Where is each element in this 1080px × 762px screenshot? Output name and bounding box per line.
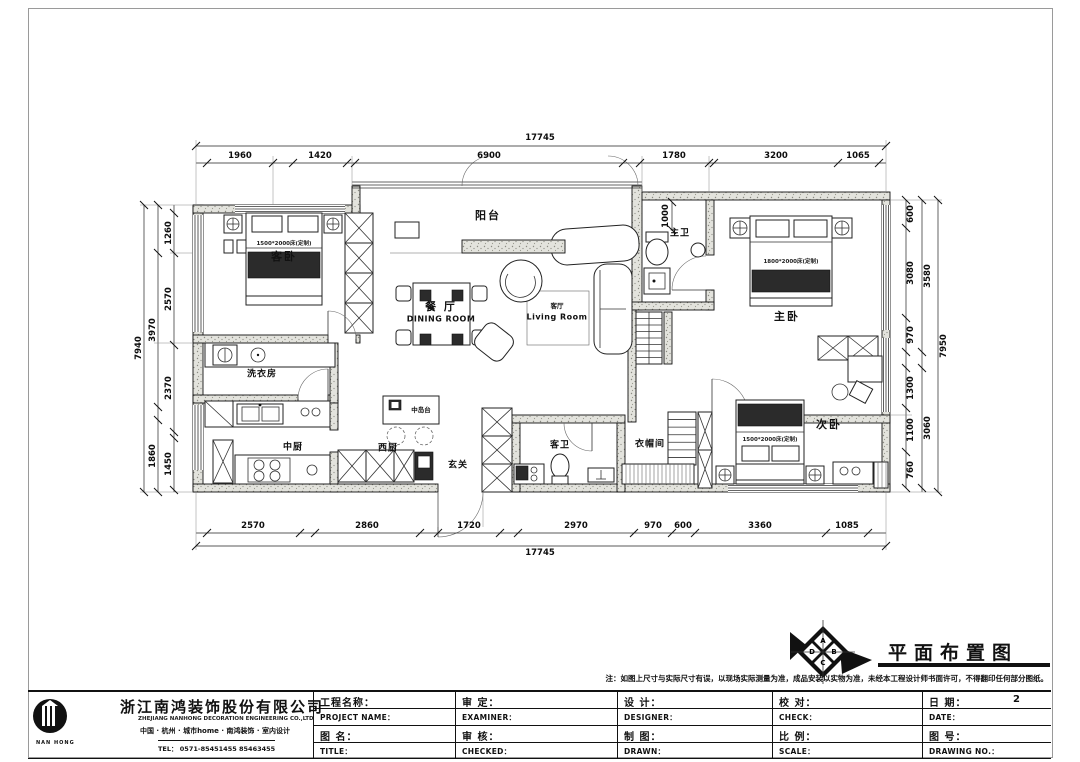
room-foyer: 玄关 [448,458,468,471]
room-master-bedroom: 主卧 [774,308,800,324]
dim-right-mid-2: 3060 [923,416,933,440]
room-living-en: Living Room [527,313,588,322]
field-scale-cn: 比 例： [779,728,816,743]
second-bed-note: 1500*2000床(定制) [742,435,797,443]
dim-bot-7: 3360 [748,521,772,531]
field-checked-en: CHECKED： [462,746,511,757]
dim-bot-6: 600 [674,521,692,531]
compass-letter-c: C [820,659,825,667]
dim-top-2: 1420 [308,151,332,161]
dim-right-in-4: 1300 [906,376,916,400]
dim-right-in-6: 760 [906,461,916,479]
field-designer-cn: 设 计： [624,694,661,709]
field-examiner-en: EXAMINER： [462,712,516,723]
dim-bot-4: 2970 [564,521,588,531]
dim-top-total: 17745 [525,133,555,143]
dim-right-total: 7950 [939,334,949,358]
furniture [205,213,882,484]
dim-bot-3: 1720 [457,521,481,531]
dim-top-6: 1065 [846,151,870,161]
room-chinese-kitchen: 中厨 [283,440,303,453]
room-cloakroom: 衣帽间 [635,437,665,450]
compass-letter-b: B [831,648,836,656]
dim-right-in-3: 970 [906,326,916,344]
dim-right-in-2: 3080 [906,261,916,285]
title-block: 浙江南鸿装饰股份有限公司 ZHEJIANG NANHONG DECORATION… [28,690,1051,759]
master-bed-note: 1800*2000床(定制) [763,257,818,265]
room-laundry: 洗衣房 [247,367,277,380]
room-dining-cn: 餐 厅 [425,298,457,314]
field-drawn-en: DRAWN： [624,746,665,757]
field-check-en: CHECK： [779,712,817,723]
company-name: 浙江南鸿装饰股份有限公司 [120,696,324,717]
dim-left-total: 7940 [134,336,144,360]
field-designer-en: DESIGNER： [624,712,677,723]
row-line [313,725,1051,726]
dim-left-in-2: 2570 [164,287,174,311]
room-island: 中岛台 [411,404,431,414]
dim-right-mid-1: 3580 [923,264,933,288]
dim-bot-1: 2570 [241,521,265,531]
room-second-bedroom: 次卧 [816,416,842,432]
dim-left-in-4: 1450 [164,452,174,476]
dim-top-4: 1780 [662,151,686,161]
compass-letter-d: D [809,648,815,656]
dim-bot-5: 970 [644,521,662,531]
dim-bot-8: 1085 [835,521,859,531]
field-examiner-cn: 审 定： [462,694,499,709]
field-checked-cn: 审 核： [462,728,499,743]
field-title-cn: 图 名： [320,728,357,743]
dim-left-in-3: 2370 [164,376,174,400]
company-tagline: 中国 · 杭州 · 城市home · 南鸿装饰 · 室内设计 [140,726,290,736]
drawing-sheet: 17745 1960 1420 6900 1780 3200 1065 1774… [0,0,1080,762]
dim-inner-1000: 1000 [661,204,671,228]
company-name-en: ZHEJIANG NANHONG DECORATION ENGINEERING … [138,716,314,722]
compass-letter-a: A [820,637,825,645]
dim-left-mid-1: 3970 [148,318,158,342]
dim-right-in-5: 1100 [906,418,916,442]
dim-right-in-1: 600 [906,205,916,223]
company-tel: TEL： 0571-85451455 85463455 [158,740,275,753]
field-check-cn: 校 对： [779,694,816,709]
drawing-note: 注：如图上尺寸与实际尺寸有误，以现场实际测量为准，成品安装以实物为准，未经本工程… [606,673,1049,684]
room-living-cn: 客厅 [551,300,564,310]
dim-left-in-1: 1260 [164,221,174,245]
room-guest-bedroom: 客卧 [271,248,297,264]
room-western-kitchen: 西厨 [378,441,398,454]
field-date-value: 2 [1013,694,1021,705]
field-project-name-cn: 工程名称： [320,694,375,709]
field-title-en: TITLE： [320,746,352,757]
field-date-cn: 日 期： [929,694,966,709]
field-drawing-no-en: DRAWING NO.： [929,746,999,757]
room-dining-en: DINING ROOM [407,315,476,324]
drawing-title: 平面布置图 [888,638,1018,665]
dim-top-5: 3200 [764,151,788,161]
guest-bed-note: 1500*2000床(定制) [256,239,311,247]
room-master-bath: 主卫 [670,226,690,239]
room-balcony: 阳台 [475,207,501,223]
field-scale-en: SCALE： [779,746,815,757]
logo-text: NAN HONG [36,740,75,746]
field-date-en: DATE： [929,712,960,723]
field-project-name-en: PROJECT NAME： [320,712,395,723]
field-drawing-no-cn: 图 号： [929,728,966,743]
dim-top-3: 6900 [477,151,501,161]
field-drawn-cn: 制 图： [624,728,661,743]
dim-bottom-total: 17745 [525,548,555,558]
dim-bot-2: 2860 [355,521,379,531]
dim-top-1: 1960 [228,151,252,161]
dim-left-mid-2: 1860 [148,444,158,468]
room-guest-bath: 客卫 [550,438,570,451]
